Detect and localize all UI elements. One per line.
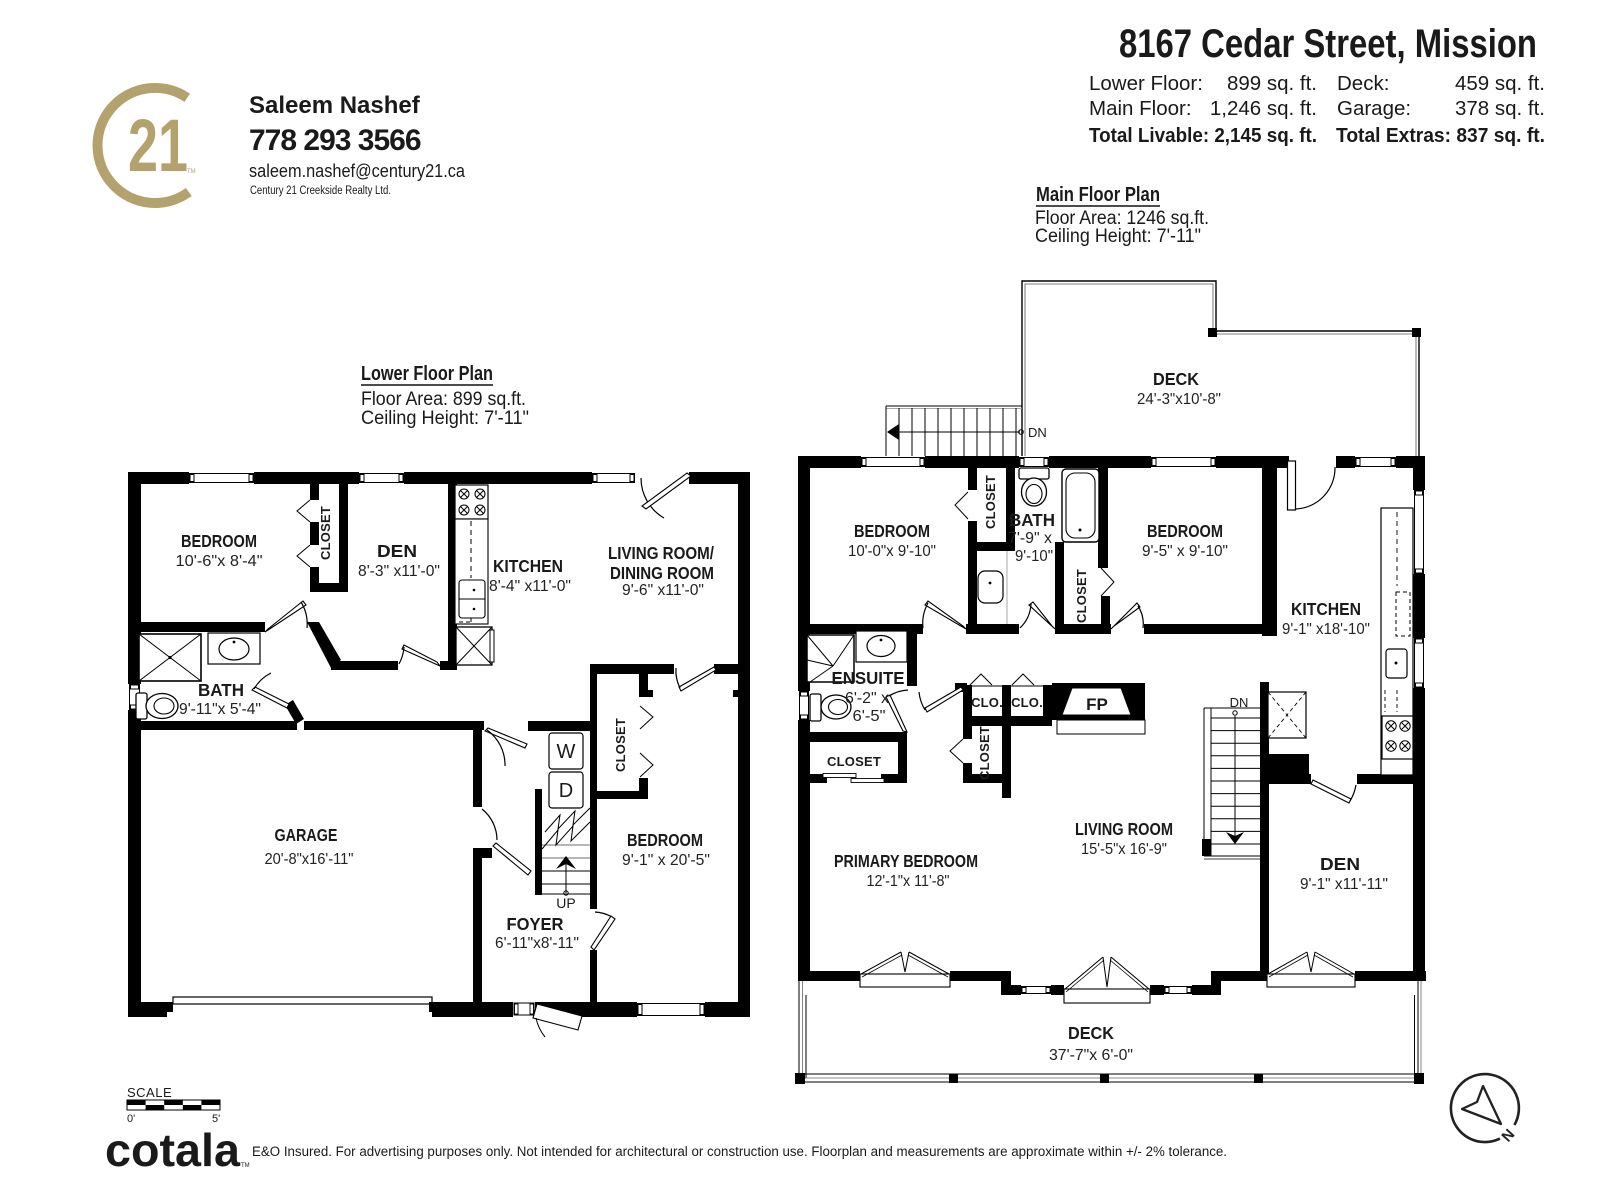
svg-text:PRIMARY BEDROOM: PRIMARY BEDROOM (834, 851, 978, 871)
svg-text:8167 Cedar Street, Mission: 8167 Cedar Street, Mission (1119, 22, 1537, 66)
svg-text:D: D (559, 780, 573, 802)
svg-text:9'-11"x 5'-4": 9'-11"x 5'-4" (179, 701, 261, 718)
svg-text:Ceiling Height: 7'-11": Ceiling Height: 7'-11" (1035, 226, 1201, 247)
svg-text:DECK: DECK (1153, 369, 1199, 389)
svg-text:LIVING ROOM: LIVING ROOM (1075, 819, 1173, 839)
svg-text:CLO.: CLO. (971, 695, 1003, 710)
svg-text:Century 21 Creekside Realty Lt: Century 21 Creekside Realty Ltd. (250, 185, 391, 197)
svg-text:BEDROOM: BEDROOM (181, 531, 257, 551)
svg-text:CLOSET: CLOSET (1074, 569, 1089, 623)
svg-text:Main Floor:: Main Floor: (1089, 97, 1192, 120)
svg-text:899 sq. ft.: 899 sq. ft. (1227, 72, 1317, 95)
svg-text:BEDROOM: BEDROOM (627, 830, 703, 850)
svg-text:KITCHEN: KITCHEN (1291, 599, 1361, 619)
svg-text:CLOSET: CLOSET (827, 754, 881, 769)
svg-text:UP: UP (556, 895, 575, 911)
svg-text:Main Floor Plan: Main Floor Plan (1036, 184, 1160, 206)
svg-text:DEN: DEN (1320, 854, 1360, 874)
svg-text:459 sq. ft.: 459 sq. ft. (1455, 72, 1545, 95)
svg-text:CLOSET: CLOSET (977, 726, 992, 780)
svg-text:CLOSET: CLOSET (318, 506, 333, 560)
svg-text:Lower Floor Plan: Lower Floor Plan (361, 363, 493, 385)
svg-text:KITCHEN: KITCHEN (493, 556, 563, 576)
svg-text:8'-4" x11'-0": 8'-4" x11'-0" (489, 578, 571, 595)
svg-text:TM: TM (241, 1163, 250, 1169)
svg-text:Saleem Nashef: Saleem Nashef (249, 92, 421, 119)
svg-text:10'-0"x 9'-10": 10'-0"x 9'-10" (848, 543, 936, 560)
svg-text:24'-3"x10'-8": 24'-3"x10'-8" (1137, 391, 1221, 408)
svg-text:DEN: DEN (377, 541, 417, 561)
svg-text:8'-3" x11'-0": 8'-3" x11'-0" (358, 563, 440, 580)
svg-text:Floor Area: 899 sq.ft.: Floor Area: 899 sq.ft. (361, 389, 526, 410)
svg-text:BEDROOM: BEDROOM (854, 521, 930, 541)
svg-text:7'-9" x: 7'-9" x (1008, 530, 1052, 547)
svg-text:DECK: DECK (1068, 1023, 1114, 1043)
svg-text:Deck:: Deck: (1337, 72, 1389, 95)
svg-text:Total Livable: 2,145 sq. ft.: Total Livable: 2,145 sq. ft. (1089, 124, 1317, 147)
svg-text:Ceiling Height: 7'-11": Ceiling Height: 7'-11" (361, 408, 529, 429)
svg-text:LIVING ROOM/: LIVING ROOM/ (608, 543, 714, 563)
svg-text:CLO.: CLO. (1011, 695, 1043, 710)
svg-text:Lower Floor:: Lower Floor: (1089, 72, 1203, 95)
svg-text:BATH: BATH (198, 680, 244, 700)
svg-text:6'-11"x8'-11": 6'-11"x8'-11" (495, 935, 579, 952)
svg-text:SCALE: SCALE (127, 1085, 172, 1100)
svg-text:CLOSET: CLOSET (983, 475, 998, 529)
svg-text:BEDROOM: BEDROOM (1147, 521, 1223, 541)
svg-text:378 sq. ft.: 378 sq. ft. (1455, 97, 1545, 120)
svg-text:DN: DN (1028, 425, 1047, 440)
svg-text:9'-5" x 9'-10": 9'-5" x 9'-10" (1142, 543, 1228, 560)
svg-text:Total Extras: 837 sq. ft.: Total Extras: 837 sq. ft. (1336, 124, 1545, 147)
svg-text:DN: DN (1230, 695, 1249, 710)
svg-text:Garage:: Garage: (1337, 97, 1411, 120)
svg-text:9'-1" x18'-10": 9'-1" x18'-10" (1282, 621, 1370, 638)
svg-text:21: 21 (128, 104, 188, 187)
svg-text:cotala: cotala (105, 1124, 240, 1176)
svg-text:TM: TM (187, 169, 196, 175)
svg-text:CLOSET: CLOSET (613, 718, 628, 772)
svg-text:BATH: BATH (1009, 510, 1055, 530)
svg-text:E&O Insured. For advertising p: E&O Insured. For advertising purposes on… (252, 1144, 1227, 1159)
svg-text:37'-7"x 6'-0": 37'-7"x 6'-0" (1049, 1047, 1133, 1064)
svg-text:10'-6"x 8'-4": 10'-6"x 8'-4" (176, 553, 263, 570)
svg-text:1,246 sq. ft.: 1,246 sq. ft. (1210, 97, 1317, 120)
svg-text:20'-8"x16'-11": 20'-8"x16'-11" (265, 851, 354, 868)
svg-text:6'-2" x: 6'-2" x (845, 690, 889, 707)
svg-text:12'-1"x 11'-8": 12'-1"x 11'-8" (867, 873, 950, 890)
svg-text:saleem.nashef@century21.ca: saleem.nashef@century21.ca (249, 161, 466, 181)
svg-text:W: W (557, 741, 576, 763)
svg-text:DINING ROOM: DINING ROOM (610, 563, 714, 583)
svg-text:9'-1" x 20'-5": 9'-1" x 20'-5" (622, 852, 710, 869)
svg-text:FOYER: FOYER (507, 914, 564, 934)
svg-text:9'-6" x11'-0": 9'-6" x11'-0" (622, 582, 704, 599)
svg-text:9'-1" x11'-11": 9'-1" x11'-11" (1300, 876, 1388, 893)
svg-text:FP: FP (1086, 695, 1108, 714)
svg-text:9'-10": 9'-10" (1015, 548, 1053, 565)
svg-text:6'-5": 6'-5" (853, 708, 886, 725)
svg-text:GARAGE: GARAGE (275, 825, 338, 845)
svg-text:15'-5"x 16'-9": 15'-5"x 16'-9" (1081, 841, 1167, 858)
svg-text:778 293 3566: 778 293 3566 (249, 124, 421, 157)
svg-text:ENSUITE: ENSUITE (832, 668, 905, 688)
